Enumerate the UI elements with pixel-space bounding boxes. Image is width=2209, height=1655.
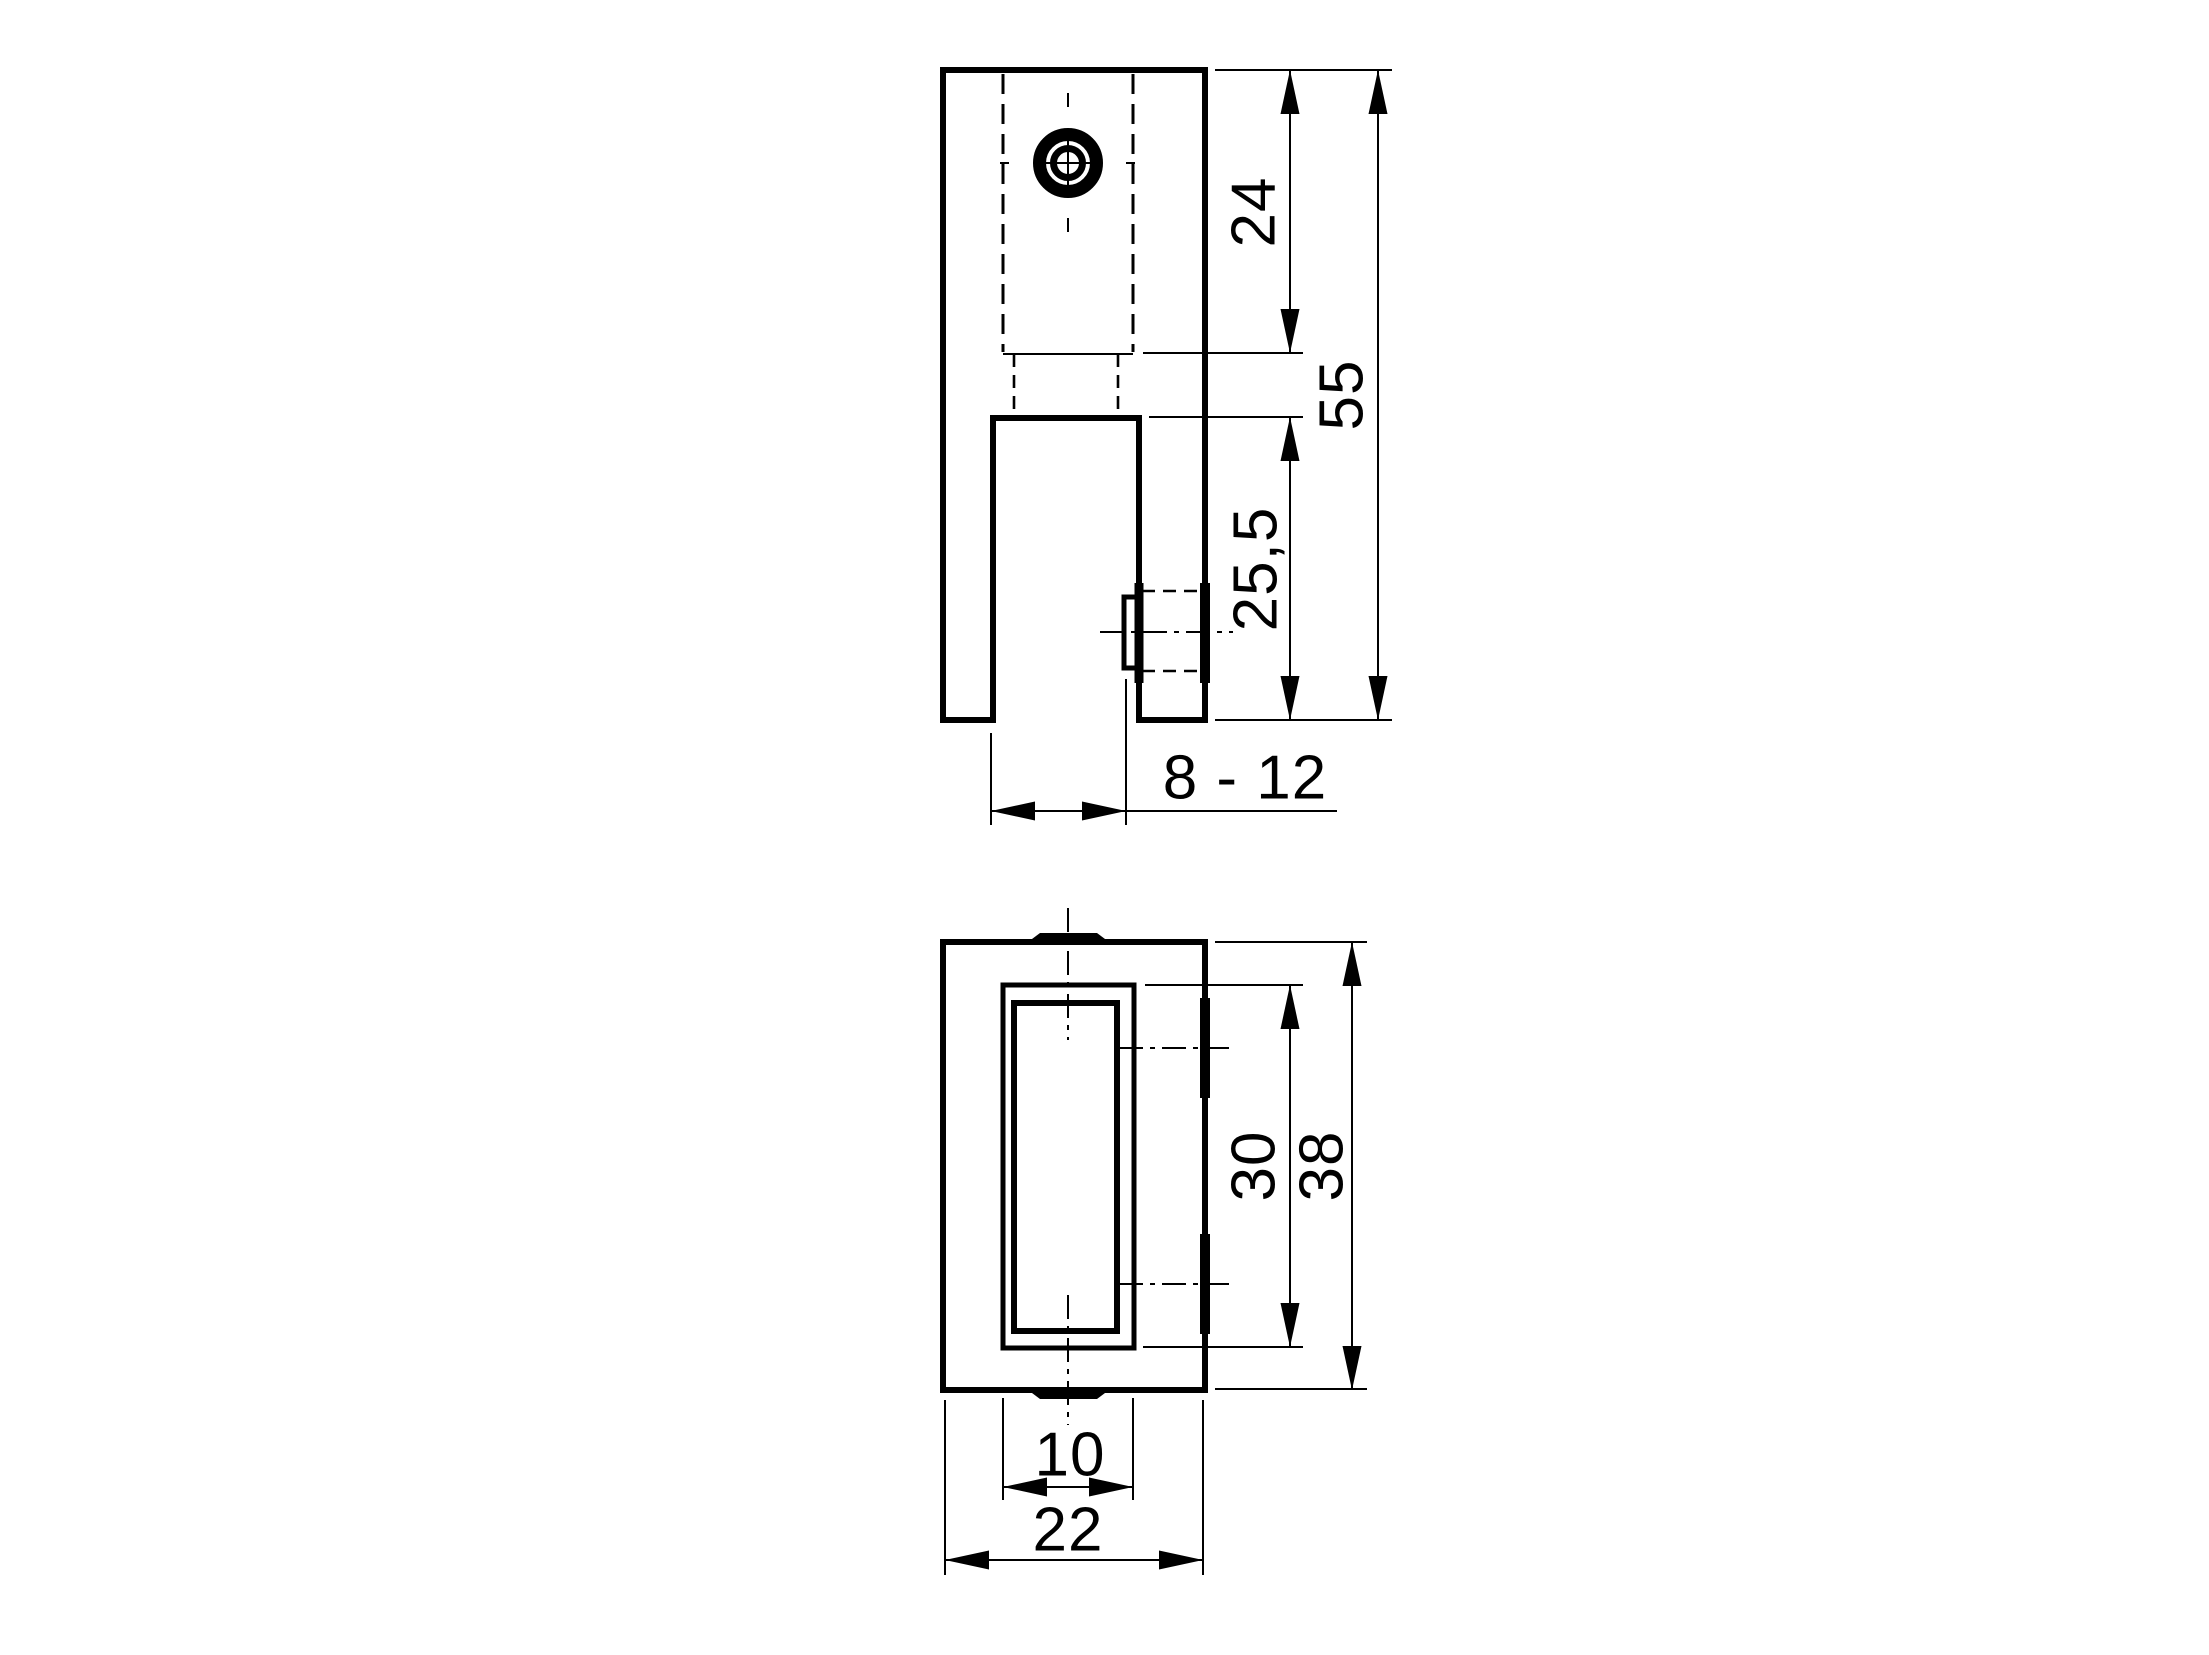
arrow-up [1281, 985, 1300, 1029]
dim-label-22: 22 [1033, 1496, 1104, 1565]
arrow-down [1369, 676, 1388, 720]
dim-label-30: 30 [1220, 1131, 1289, 1202]
arrow-up [1281, 417, 1300, 461]
arrow-right [1159, 1551, 1203, 1570]
arrow-up [1343, 942, 1362, 986]
dim-label-25-5: 25,5 [1222, 507, 1291, 632]
arrow-down [1281, 676, 1300, 720]
arrow-down [1281, 309, 1300, 353]
arrow-left [991, 802, 1035, 821]
clamp-technical-drawing: 24 25,5 55 8 - 12 [0, 0, 2209, 1655]
arrow-up [1281, 70, 1300, 114]
plan-view: 30 38 10 22 [943, 908, 1367, 1575]
side-view: 24 25,5 55 8 - 12 [943, 70, 1392, 825]
side-view-outline [943, 70, 1205, 720]
arrow-right [1082, 802, 1126, 821]
arrow-down [1281, 1303, 1300, 1347]
dim-label-55: 55 [1308, 360, 1377, 431]
arrow-down [1343, 1346, 1362, 1390]
dim-label-38: 38 [1288, 1131, 1357, 1202]
dim-label-8-12: 8 - 12 [1163, 744, 1328, 813]
technical-drawing-canvas: 24 25,5 55 8 - 12 [0, 0, 2209, 1655]
arrow-up [1369, 70, 1388, 114]
arrow-left [945, 1551, 989, 1570]
dimension-55: 55 [1308, 70, 1388, 720]
dim-label-24: 24 [1220, 177, 1289, 248]
dim-label-10: 10 [1035, 1421, 1106, 1490]
plan-outer-body [943, 942, 1205, 1390]
